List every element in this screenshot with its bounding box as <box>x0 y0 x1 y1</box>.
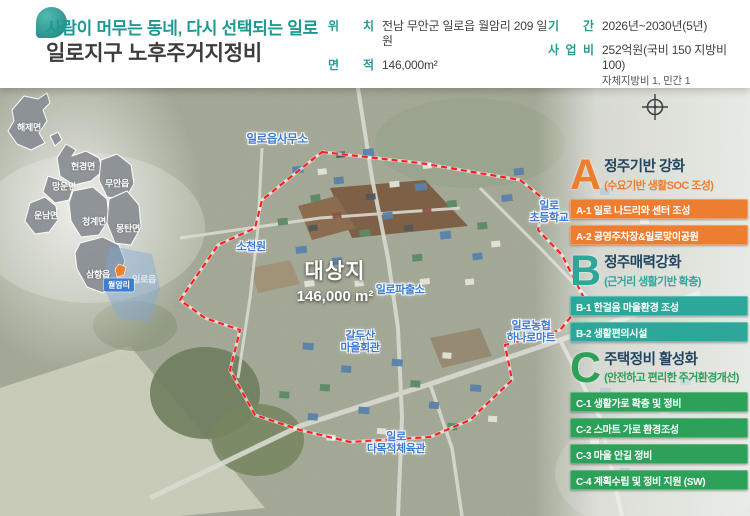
region-illo: 일로읍 <box>132 273 156 286</box>
target-site-area: 146,000 m² <box>297 288 374 305</box>
area-label: 면 적 <box>328 58 374 73</box>
panel-a-item-1: A-1 일로 나드리와 센터 조성 <box>570 199 748 219</box>
poi-village-hall: 갈두산 마을회관 <box>341 330 380 354</box>
panel-c-item-2: C-2 스마트 가로 환경조성 <box>570 418 748 438</box>
panel-a-item-2: A-2 공영주차장&일로맞이공원 <box>570 225 748 245</box>
region-hyeongyeong: 현경면 <box>71 160 95 173</box>
region-cheonggye: 청계면 <box>82 215 106 228</box>
poi-sports-center: 일로 다목적체육관 <box>367 431 425 455</box>
panel-c-item-4: C-4 계획수립 및 정비 지원 (SW) <box>570 470 748 490</box>
header: 사람이 머무는 동네, 다시 선택되는 일로 일로지구 노후주거지정비 위 치 … <box>0 0 750 88</box>
panel-c-letter: C <box>570 351 599 386</box>
location-label: 위 치 <box>328 19 374 49</box>
area-value: 146,000m² <box>382 58 438 73</box>
panel-b-item-1: B-1 한걸음 마을환경 조성 <box>570 296 748 316</box>
panel-b: B 정주매력강화 (근거리 생활기반 확충) B-1 한걸음 마을환경 조성 B… <box>570 254 748 341</box>
poi-town-office: 일로읍사무소 <box>246 134 307 147</box>
infographic-page: 사람이 머무는 동네, 다시 선택되는 일로 일로지구 노후주거지정비 위 치 … <box>0 0 750 516</box>
region-muan: 무안읍 <box>105 177 129 190</box>
target-site-label: 대상지 146,000 m² <box>297 255 374 305</box>
site-marker-badge: 월암리 <box>104 279 134 292</box>
poi-elementary-school: 일로 초등학교 <box>530 200 569 224</box>
panel-b-subtitle: (근거리 생활기반 확충) <box>604 273 701 289</box>
poi-hanaro-mart: 일로농협 하나로마트 <box>507 320 556 344</box>
period-value: 2026년~2030년(5년) <box>602 19 707 34</box>
panel-c-header: C 주택정비 활성화 (안전하고 편리한 주거환경개선) <box>570 351 748 386</box>
page-title: 일로지구 노후주거지정비 <box>46 37 262 67</box>
panel-c-title: 주택정비 활성화 <box>604 351 739 369</box>
panel-a-header: A 정주기반 강화 (수요기반 생활SOC 조성) <box>570 158 748 193</box>
region-haeje: 해제면 <box>17 121 41 134</box>
panel-c-subtitle: (안전하고 편리한 주거환경개선) <box>604 369 739 385</box>
info-period-budget: 기 간 2026년~2030년(5년) 사 업 비 252억원(국비 150 지… <box>548 19 748 97</box>
panel-c-item-1: C-1 생활가로 확충 및 정비 <box>570 392 748 412</box>
target-site-name: 대상지 <box>297 255 374 285</box>
info-row-budget: 사 업 비 252억원(국비 150 지방비 100) 자체지방비 1, 민간 … <box>548 43 748 88</box>
panel-a: A 정주기반 강화 (수요기반 생활SOC 조성) A-1 일로 나드리와 센터… <box>570 158 748 245</box>
panel-b-item-2: B-2 생활편의시설 <box>570 322 748 342</box>
panel-a-title: 정주기반 강화 <box>604 158 713 176</box>
info-location-area: 위 치 전남 무안군 일로읍 월암리 209 일원 면 적 146,000m² <box>328 19 548 82</box>
poi-police-substation: 일로파출소 <box>376 284 425 296</box>
panel-c: C 주택정비 활성화 (안전하고 편리한 주거환경개선) C-1 생활가로 확충… <box>570 351 748 490</box>
region-mangun: 망운면 <box>52 180 76 193</box>
period-label: 기 간 <box>548 19 594 34</box>
region-unnam: 운남면 <box>34 209 58 222</box>
poi-socheonwon: 소천원 <box>236 241 265 253</box>
slogan: 사람이 머무는 동네, 다시 선택되는 일로 <box>46 14 318 39</box>
panel-a-subtitle: (수요기반 생활SOC 조성) <box>604 177 713 193</box>
strategy-panels: A 정주기반 강화 (수요기반 생활SOC 조성) A-1 일로 나드리와 센터… <box>570 158 748 499</box>
compass-icon <box>641 93 669 121</box>
info-row-period: 기 간 2026년~2030년(5년) <box>548 19 748 34</box>
info-row-location: 위 치 전남 무안군 일로읍 월암리 209 일원 <box>328 19 548 49</box>
panel-b-letter: B <box>570 254 599 289</box>
location-value: 전남 무안군 일로읍 월암리 209 일원 <box>382 19 548 49</box>
region-mongtan: 몽탄면 <box>116 222 140 235</box>
panel-b-title: 정주매력강화 <box>604 254 701 272</box>
info-row-area: 면 적 146,000m² <box>328 58 548 73</box>
panel-b-header: B 정주매력강화 (근거리 생활기반 확충) <box>570 254 748 289</box>
panel-a-letter: A <box>570 158 599 193</box>
budget-label: 사 업 비 <box>548 43 594 88</box>
budget-main: 252억원(국비 150 지방비 100) <box>602 43 727 72</box>
budget-sub: 자체지방비 1, 민간 1 <box>602 75 748 88</box>
panel-c-item-3: C-3 마을 안길 정비 <box>570 444 748 464</box>
budget-value: 252억원(국비 150 지방비 100) 자체지방비 1, 민간 1 <box>602 43 748 88</box>
satellite-map: 해제면 현경면 망운면 무안읍 운남면 청계면 몽탄면 삼향읍 일로읍 월암리 … <box>0 88 750 516</box>
